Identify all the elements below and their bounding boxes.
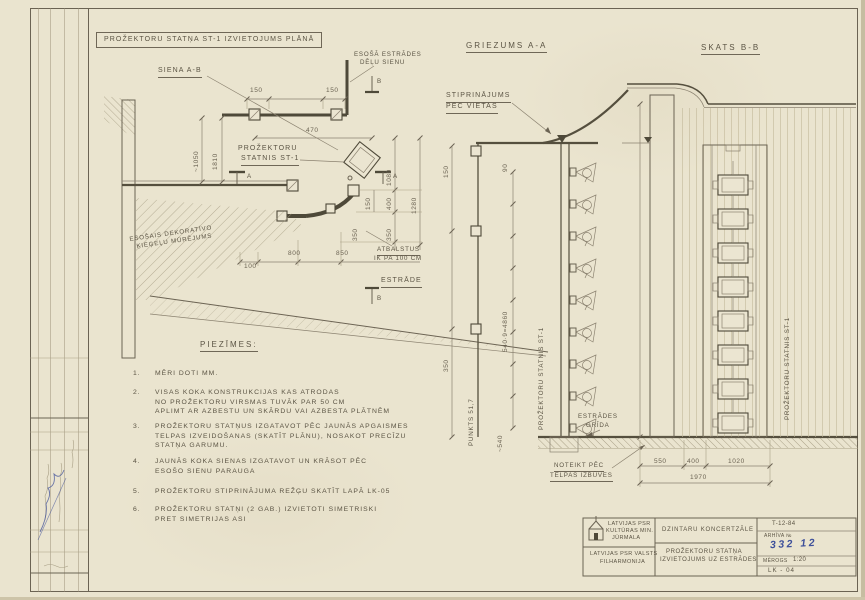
post-label-bb: PROŽEKTORU STATNIS ST-1 — [784, 317, 792, 420]
stage-label: ESTRĀDE — [381, 277, 422, 288]
archive-number: 332 12 — [770, 537, 818, 553]
dim-spacing: 540·9=4860 — [502, 311, 510, 352]
determine-note: TELPAS IZBŪVES — [550, 472, 613, 482]
section-marker-b: B — [377, 295, 382, 303]
projector-stand-label: PROŽEKTORU — [238, 145, 298, 154]
dim-1050: ~1050 — [193, 151, 201, 172]
sheet-title: PROŽEKTORU STATŅA — [666, 549, 742, 557]
dim-800: 800 — [288, 250, 301, 258]
stage-floor-label: ESTRĀDES — [578, 413, 618, 421]
determine-note: NOTEIKT PĒC — [554, 462, 604, 472]
section-marker-b: B — [377, 78, 382, 86]
dim-850: 850 — [336, 250, 349, 258]
dim-350: 350 — [352, 228, 360, 241]
paper-edge — [861, 0, 865, 600]
dim-total: 1970 — [690, 474, 707, 482]
dim-350: 350 — [386, 228, 394, 241]
doc-code: T-12-84 — [772, 521, 795, 529]
existing-wall-label: DĒĻU SIENU — [360, 59, 405, 67]
dim-1810: 1810 — [212, 153, 220, 170]
note-item: 5. PROŽEKTORU STIPRINĀJUMA REŽĢU SKATĪT … — [155, 487, 390, 497]
org-name-2: LATVIJAS PSR VALSTS — [590, 551, 658, 558]
view-bb-title: SKATS B-B — [701, 43, 760, 55]
dim-350: 350 — [443, 359, 451, 372]
org-name-2: FILHARMONIJA — [600, 559, 645, 566]
dim-1280: 1280 — [411, 197, 419, 214]
dim-90: 90 — [502, 164, 510, 172]
fixing-label: STIPRINĀJUMS — [446, 92, 511, 103]
fixing-label: PĒC VIETAS — [446, 103, 498, 114]
dim-540: ~540 — [497, 435, 505, 452]
stage-floor-label: GRĪDA — [586, 422, 610, 430]
drawing-linework — [0, 0, 865, 600]
note-item: 6. PROŽEKTORU STATŅI (2 GAB.) IZVIETOTI … — [155, 505, 377, 524]
notes-title: PIEZĪMES: — [200, 340, 258, 352]
organization-logo-icon — [589, 516, 603, 540]
plan-title: PROŽEKTORU STATŅA ST-1 IZVIETOJUMS PLĀNĀ — [96, 32, 322, 48]
dim-150: 150 — [365, 197, 373, 210]
note-item: 2. VISAS KOKA KONSTRUKCIJAS KAS ATRODAS … — [155, 388, 390, 417]
dim-400: 400 — [386, 197, 394, 210]
existing-wall-label: ESOŠĀ ESTRĀDES — [354, 51, 422, 59]
section-marker-a: A — [247, 173, 252, 181]
signature-scribble — [38, 440, 74, 568]
point-label: PUNKTS 51,7 — [468, 398, 476, 446]
section-aa-title: GRIEZUMS A-A — [466, 41, 547, 53]
post-label-aa: PROŽEKTORU STATNIS ST-1 — [538, 327, 546, 430]
dim-100: 100 — [244, 263, 257, 271]
note-item: 3. PROŽEKTORU STATŅUS IZGATAVOT PĒC JAUN… — [155, 422, 409, 451]
dim-150: 150 — [250, 87, 263, 95]
dim-470: 470 — [306, 127, 319, 135]
section-marker-a: A — [393, 173, 398, 181]
drawing-sheet: PROŽEKTORU STATŅA ST-1 IZVIETOJUMS PLĀNĀ… — [0, 0, 865, 600]
scale-value: 1:20 — [793, 557, 806, 565]
dim-550: 550 — [654, 458, 667, 466]
org-name: JŪRMALA — [612, 535, 640, 542]
sheet-number: LK - 04 — [768, 567, 795, 575]
note-item: 4. JAUNĀS KOKA SIENAS IZGATAVOT UN KRĀSO… — [155, 457, 367, 476]
scale-label: MĒROGS — [763, 558, 788, 565]
dim-150: 150 — [326, 87, 339, 95]
note-item: 1. MĒRI DOTI MM. — [155, 369, 218, 379]
project-name: DZINTARU KONCERTZĀLE — [662, 527, 754, 535]
view-bb-linework — [622, 84, 856, 487]
plan-wall-label: SIENA A-B — [158, 67, 202, 78]
sheet-title: IZVIETOJUMS UZ ESTRĀDES — [660, 557, 757, 565]
supports-label: IK PA 100 CM — [374, 255, 422, 263]
projector-stand-label: STATNIS ST-1 — [241, 155, 299, 166]
dim-1020: 1020 — [728, 458, 745, 466]
dim-400: 400 — [687, 458, 700, 466]
dim-150: 150 — [443, 165, 451, 178]
